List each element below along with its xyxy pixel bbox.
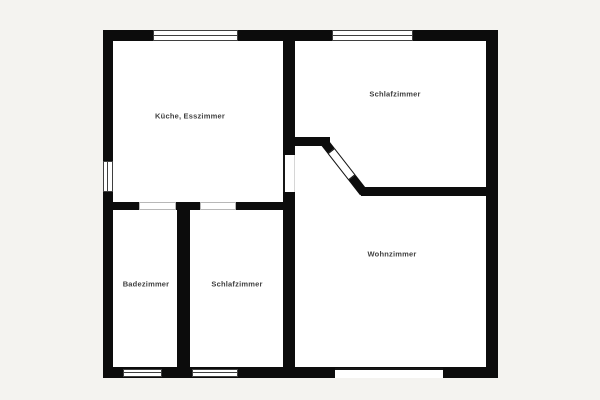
window-pane	[124, 372, 161, 373]
window-kueche-top	[153, 30, 238, 41]
room-label-kueche-esszimmer: Küche, Esszimmer	[155, 112, 225, 121]
window-pane	[193, 372, 237, 373]
window-pane	[154, 35, 237, 36]
door-badezimmer	[139, 202, 176, 210]
patio-door-wohnzimmer	[335, 368, 443, 378]
wall-central-vertical	[283, 41, 295, 367]
room-label-schlafzimmer-bottom: Schlafzimmer	[211, 280, 262, 289]
window-schlafzimmer-bottom	[192, 369, 238, 377]
room-label-badezimmer: Badezimmer	[123, 280, 170, 289]
floor-plan: Küche, Esszimmer Schlafzimmer Badezimmer…	[0, 0, 600, 400]
window-badezimmer-bottom	[123, 369, 162, 377]
window-schlafzimmer-top	[332, 30, 413, 41]
window-pane	[107, 162, 108, 191]
door-kueche	[283, 155, 295, 192]
wall-bad-schlafzimmer	[177, 210, 190, 367]
window-kueche-left	[103, 161, 113, 192]
window-pane	[333, 35, 412, 36]
door-schlafzimmer-bottom	[200, 202, 236, 210]
wall-wohnzimmer-horizontal	[361, 187, 486, 196]
room-label-schlafzimmer-top: Schlafzimmer	[369, 90, 420, 99]
room-label-wohnzimmer: Wohnzimmer	[368, 250, 417, 259]
